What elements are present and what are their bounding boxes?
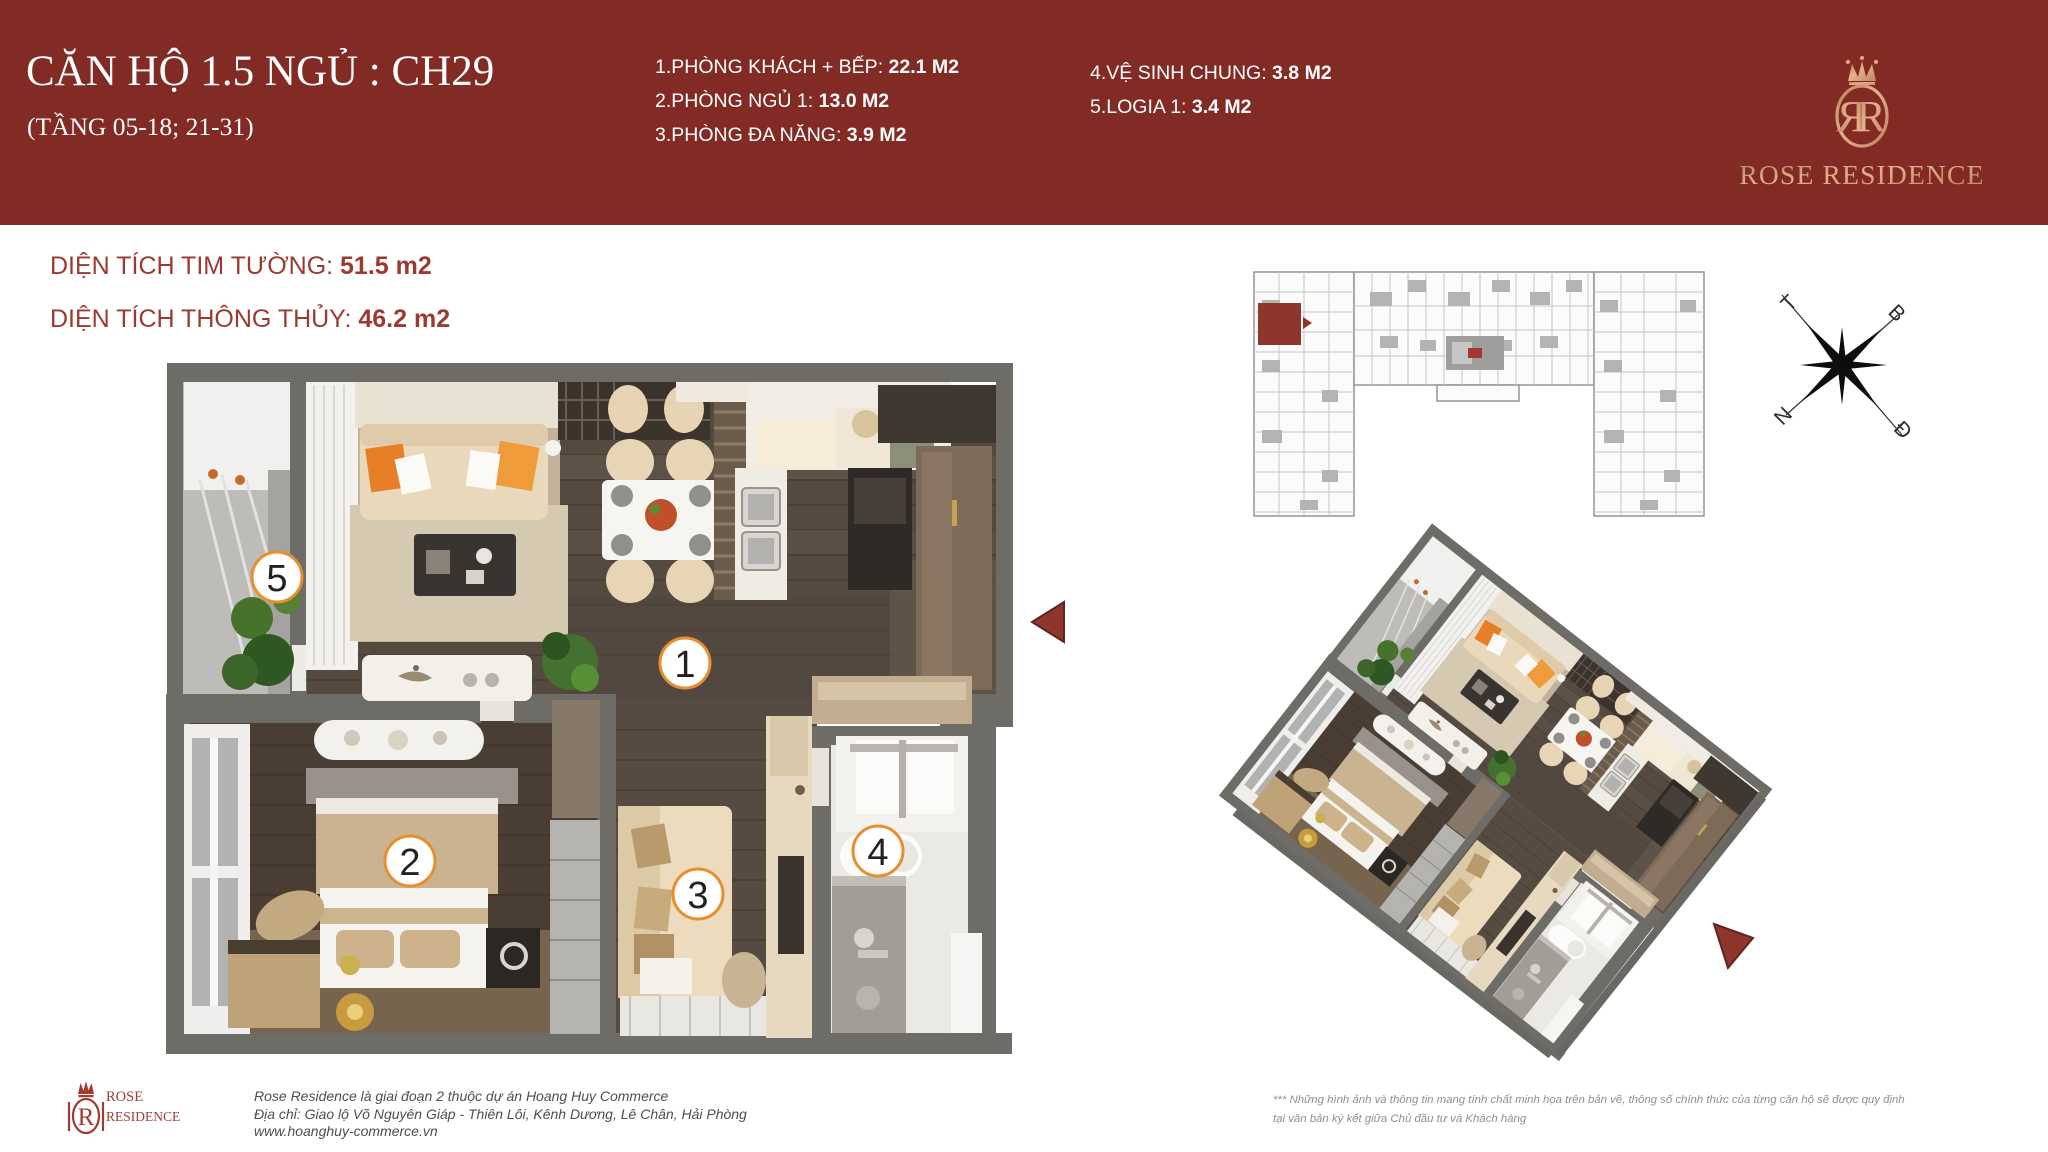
svg-text:2: 2 bbox=[399, 842, 420, 884]
svg-text:Đ: Đ bbox=[1889, 417, 1916, 444]
svg-text:R: R bbox=[1856, 92, 1886, 141]
svg-text:ROSE: ROSE bbox=[106, 1089, 143, 1105]
svg-text:N: N bbox=[1770, 403, 1797, 430]
svg-text:R: R bbox=[78, 1104, 95, 1131]
svg-text:1: 1 bbox=[674, 644, 695, 686]
svg-text:B: B bbox=[1884, 300, 1910, 326]
svg-text:4: 4 bbox=[867, 832, 888, 874]
svg-text:ROSE RESIDENCE: ROSE RESIDENCE bbox=[1739, 159, 1984, 190]
svg-text:RESIDENCE: RESIDENCE bbox=[106, 1109, 180, 1124]
svg-text:T: T bbox=[1777, 291, 1802, 316]
svg-text:3: 3 bbox=[687, 875, 708, 917]
svg-text:5: 5 bbox=[266, 558, 287, 600]
